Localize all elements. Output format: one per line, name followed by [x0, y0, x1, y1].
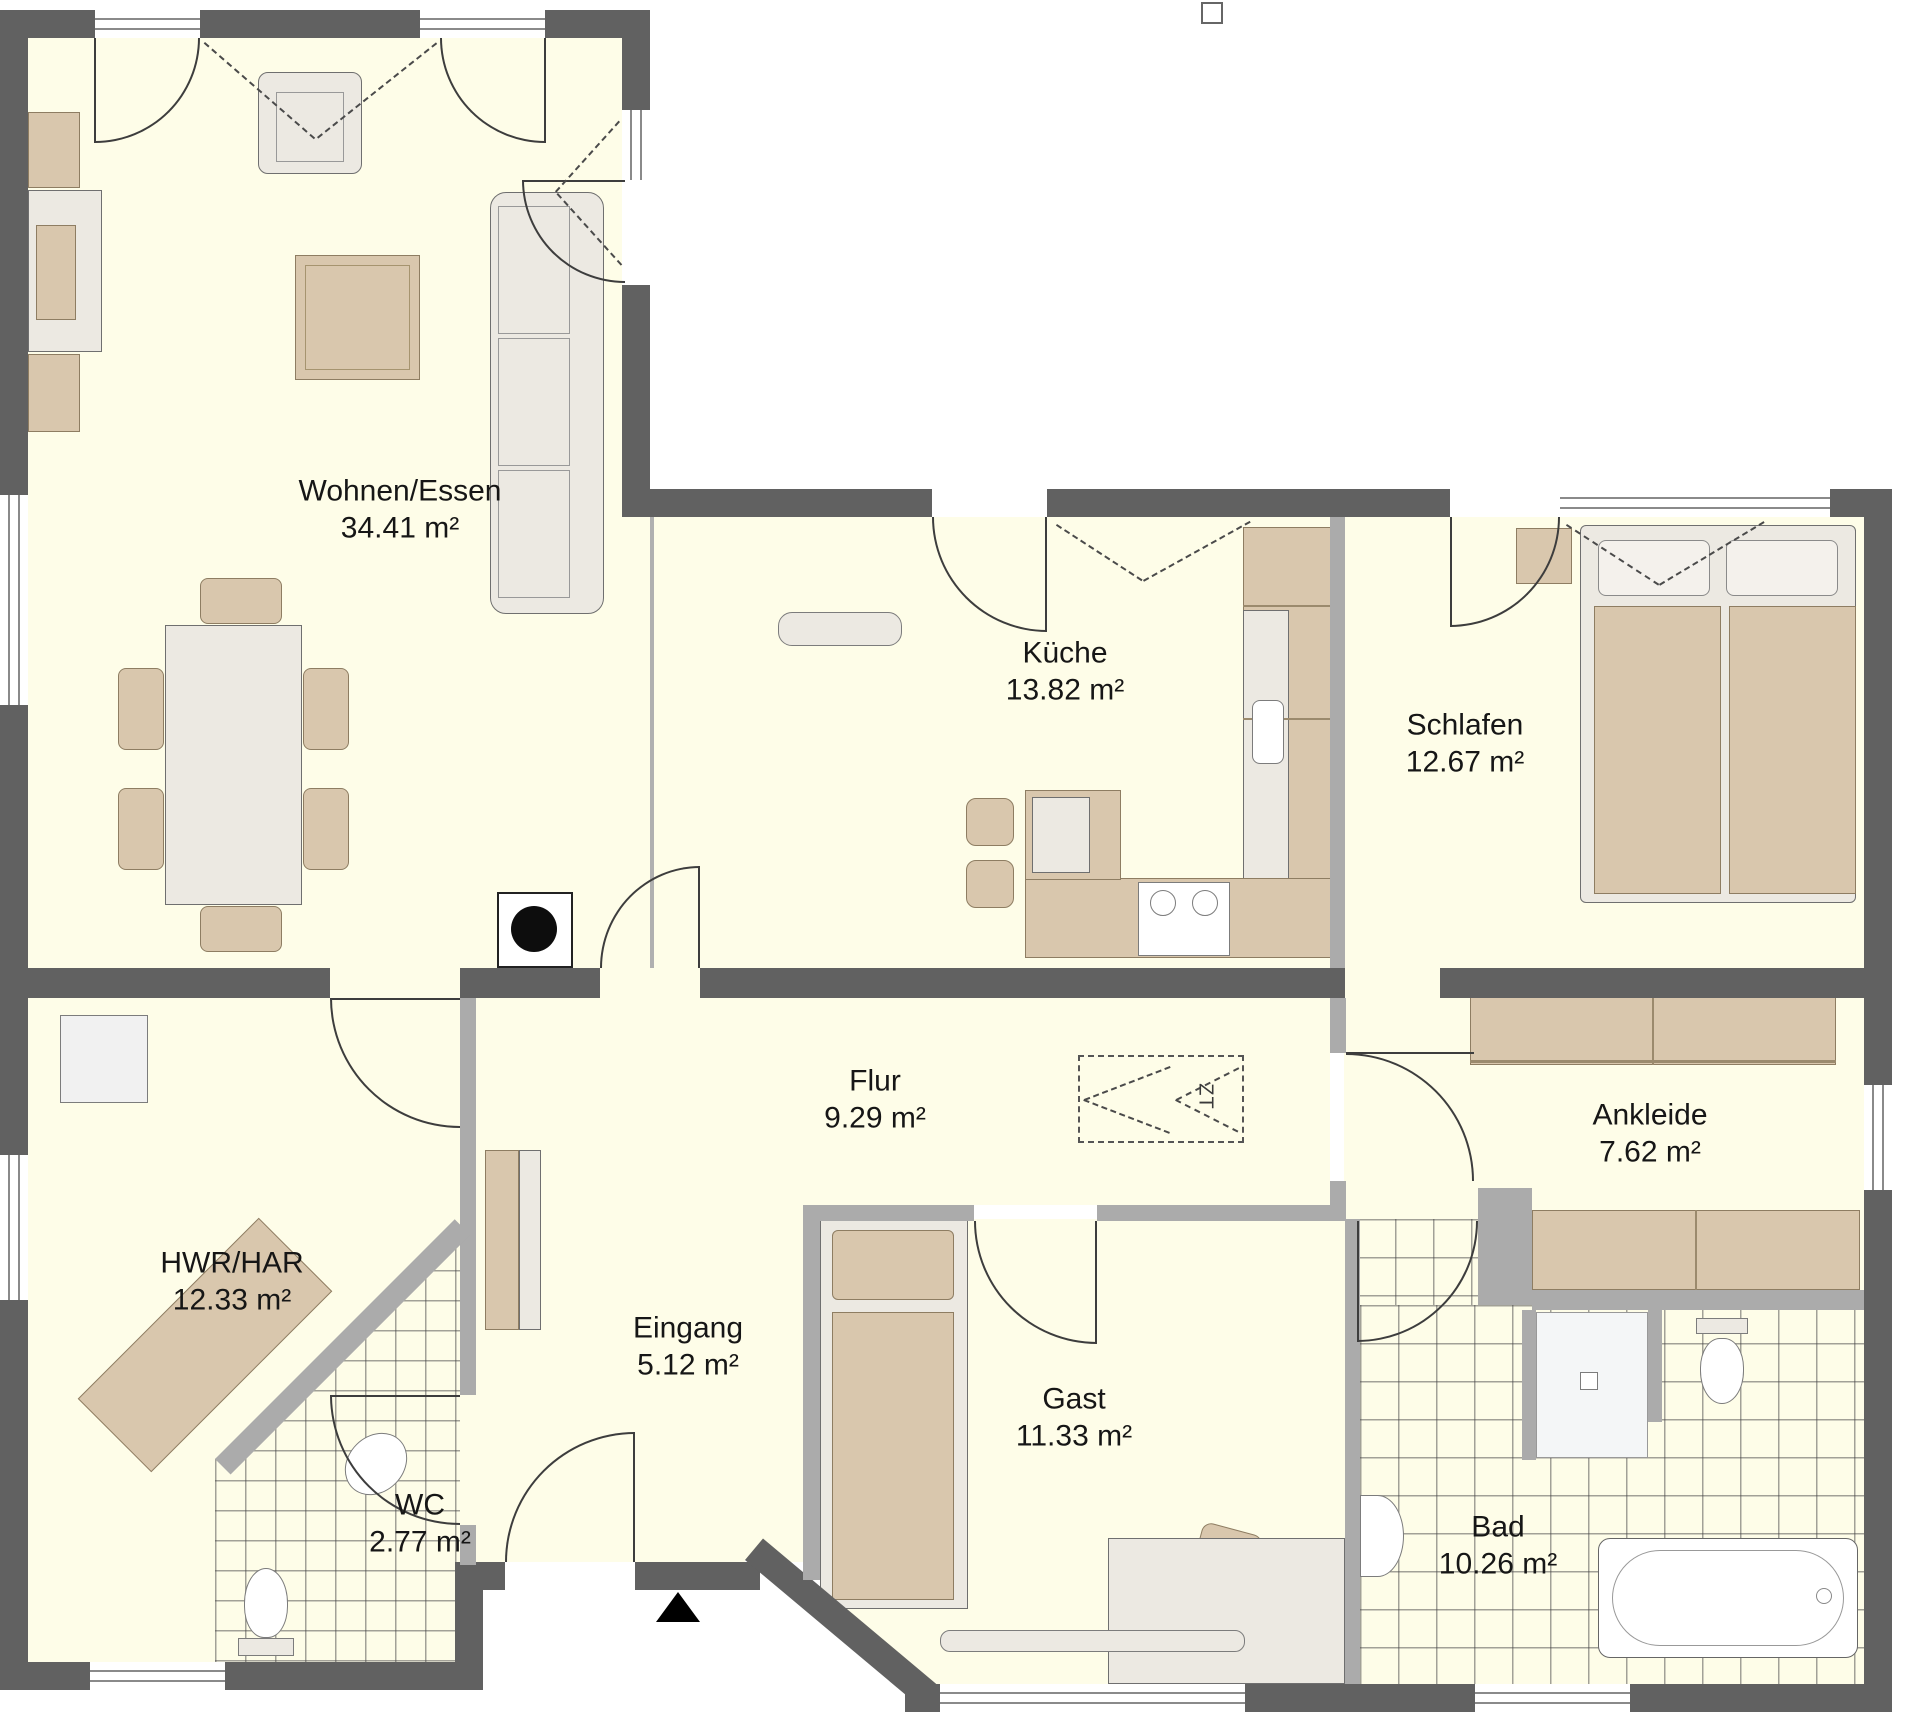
- room-label-eingang: Eingang5.12 m²: [633, 1310, 743, 1383]
- projection-dashed-line: [1083, 1099, 1170, 1134]
- toilet-tank: [238, 1638, 294, 1656]
- wall-segment-interior: [1522, 1310, 1536, 1460]
- room-name: WC: [369, 1487, 471, 1524]
- media-shelf: [28, 354, 80, 432]
- wall-segment-interior: [460, 998, 476, 1240]
- wall-segment-exterior: [1630, 1684, 1892, 1712]
- toilet: [244, 1568, 288, 1638]
- media-shelf: [28, 112, 80, 188]
- room-area: 12.67 m²: [1406, 744, 1524, 781]
- shower-drain: [1580, 1372, 1598, 1390]
- attic-ladder-symbol: ZT: [1078, 1055, 1244, 1143]
- room-name: Eingang: [633, 1310, 743, 1347]
- wall-segment-interior: [820, 1205, 974, 1221]
- desk: [1108, 1538, 1345, 1684]
- door-leaf: [330, 1395, 460, 1397]
- coffee-table-top: [305, 265, 410, 370]
- tv: [36, 225, 76, 320]
- wall-segment-exterior: [1864, 1190, 1892, 1690]
- wall-segment-exterior: [455, 1590, 483, 1666]
- room-area: 13.82 m²: [1006, 672, 1124, 709]
- door-leaf: [633, 1432, 635, 1562]
- door-leaf: [1095, 1221, 1097, 1344]
- wall-segment-exterior: [460, 968, 600, 998]
- chimney-flue: [511, 906, 557, 952]
- window: [940, 1684, 1245, 1712]
- dining-table: [165, 625, 302, 905]
- door-opening: [622, 180, 650, 285]
- guest-bed-mattress: [832, 1312, 954, 1600]
- room-area: 11.33 m²: [1016, 1418, 1132, 1455]
- furniture-divider-line: [1470, 1060, 1836, 1063]
- projection-dashed-line: [1084, 1066, 1171, 1101]
- armchair-seat: [276, 92, 344, 162]
- mattress: [1729, 606, 1856, 894]
- room-label-gast: Gast11.33 m²: [1016, 1381, 1132, 1454]
- attic-ladder-label: ZT: [1194, 1083, 1217, 1109]
- room-label-ankleide: Ankleide7.62 m²: [1592, 1097, 1707, 1170]
- plan-symbol: [1201, 2, 1223, 24]
- pillow: [1598, 540, 1710, 596]
- wall-segment-exterior: [1864, 489, 1892, 1085]
- dining-chair: [118, 668, 164, 750]
- floor-plan-canvas: ZT Wohnen/Essen34.41 m² Küche13.82 m² Sc…: [0, 0, 1920, 1712]
- window: [0, 1155, 28, 1300]
- sofa-cushion: [498, 338, 570, 466]
- wall-segment-interior: [1097, 1205, 1330, 1221]
- bathtub-drain: [1816, 1588, 1832, 1604]
- window: [1475, 1684, 1630, 1712]
- wall-segment-interior: [1330, 1181, 1346, 1221]
- wall-segment-exterior: [622, 285, 650, 517]
- dining-chair: [303, 788, 349, 870]
- room-label-hwr: HWR/HAR12.33 m²: [160, 1245, 303, 1318]
- window: [1560, 489, 1830, 517]
- door-opening: [1450, 489, 1560, 517]
- window: [1864, 1085, 1892, 1190]
- wall-segment-exterior: [1047, 489, 1450, 517]
- room-floor: [330, 968, 460, 998]
- room-name: Bad: [1439, 1509, 1557, 1546]
- wall-segment-exterior: [1245, 1684, 1345, 1712]
- dining-chair: [303, 668, 349, 750]
- room-label-wohnen-essen: Wohnen/Essen34.41 m²: [299, 473, 502, 546]
- wall-segment-interior: [460, 1240, 476, 1395]
- door-leaf: [522, 180, 625, 182]
- room-name: Wohnen/Essen: [299, 473, 502, 510]
- wall-segment-exterior: [700, 968, 1345, 998]
- room-area: 7.62 m²: [1592, 1134, 1707, 1171]
- guest-bed-pillow: [832, 1230, 954, 1300]
- wall-segment-interior: [1648, 1310, 1662, 1422]
- wall-segment-exterior: [225, 1662, 483, 1690]
- room-label-schlafen: Schlafen12.67 m²: [1406, 707, 1524, 780]
- door-leaf: [544, 38, 546, 143]
- door-leaf: [1045, 517, 1047, 632]
- room-name: Flur: [824, 1063, 926, 1100]
- wall-segment-exterior: [200, 10, 420, 38]
- door-leaf: [1346, 1052, 1474, 1054]
- bar-stool: [966, 860, 1014, 908]
- wall-segment-exterior: [0, 1662, 90, 1690]
- room-name: HWR/HAR: [160, 1245, 303, 1282]
- window: [0, 495, 28, 705]
- kitchen-sink: [1252, 700, 1284, 764]
- room-area: 5.12 m²: [633, 1347, 743, 1384]
- wall-segment-exterior: [650, 489, 932, 517]
- stove-burner: [1192, 890, 1218, 916]
- room-area: 9.29 m²: [824, 1100, 926, 1137]
- room-label-bad: Bad10.26 m²: [1439, 1509, 1557, 1582]
- window: [95, 10, 200, 38]
- door-leaf: [1450, 517, 1452, 627]
- wall-segment-exterior: [1345, 1684, 1475, 1712]
- door-leaf: [698, 866, 700, 968]
- window: [420, 10, 545, 38]
- room-floor: [1345, 968, 1440, 998]
- room-label-kueche: Küche13.82 m²: [1006, 635, 1124, 708]
- furniture-divider-line: [1652, 995, 1654, 1065]
- wall-segment-interior: [803, 1205, 820, 1580]
- toilet: [1700, 1338, 1744, 1404]
- room-name: Schlafen: [1406, 707, 1524, 744]
- wall-segment-exterior: [455, 1562, 505, 1590]
- dining-chair: [200, 578, 282, 624]
- sofa-cushion: [498, 470, 570, 598]
- entrance-arrow-icon: [656, 1592, 700, 1622]
- room-area: 12.33 m²: [160, 1282, 303, 1319]
- wall-segment-exterior: [635, 1562, 760, 1590]
- dining-chair: [118, 788, 164, 870]
- wall-segment-exterior: [0, 705, 28, 1155]
- wall-segment-exterior: [28, 968, 330, 998]
- wall-segment-exterior: [622, 10, 650, 110]
- door-leaf: [1357, 1221, 1359, 1342]
- room-label-flur: Flur9.29 m²: [824, 1063, 926, 1136]
- room-area: 10.26 m²: [1439, 1546, 1557, 1583]
- washing-machine: [60, 1015, 148, 1103]
- door-opening: [932, 489, 1047, 517]
- wall-segment-interior: [1330, 998, 1346, 1053]
- room-label-wc: WC2.77 m²: [369, 1487, 471, 1560]
- room-name: Küche: [1006, 635, 1124, 672]
- bar-stool: [966, 798, 1014, 846]
- dining-chair: [200, 906, 282, 952]
- pillow: [1726, 540, 1838, 596]
- entrance-door-opening: [505, 1562, 635, 1590]
- wall-segment-exterior: [0, 10, 28, 495]
- door-leaf: [330, 998, 460, 1000]
- wall-segment-interior: [1532, 1290, 1864, 1310]
- radiator: [778, 612, 902, 646]
- radiator: [940, 1630, 1245, 1652]
- mattress: [1594, 606, 1721, 894]
- wall-segment-interior: [1330, 517, 1345, 968]
- entry-closet-front: [519, 1150, 541, 1330]
- stove-burner: [1150, 890, 1176, 916]
- room-name: Gast: [1016, 1381, 1132, 1418]
- bathtub-basin: [1612, 1550, 1844, 1646]
- wall-segment-exterior: [0, 1300, 28, 1690]
- furniture-divider-line: [1243, 605, 1331, 607]
- window: [90, 1662, 225, 1690]
- room-name: Ankleide: [1592, 1097, 1707, 1134]
- room-area: 34.41 m²: [299, 510, 502, 547]
- wall-segment-exterior: [905, 1684, 940, 1712]
- furniture-divider-line: [1695, 1210, 1697, 1290]
- entry-closet: [485, 1150, 519, 1330]
- room-floor: [600, 968, 700, 998]
- room-area: 2.77 m²: [369, 1524, 471, 1561]
- wall-segment-exterior: [1440, 968, 1864, 998]
- kitchen-peninsula-top: [1032, 797, 1090, 873]
- wall-segment-interior: [1478, 1188, 1532, 1305]
- stove: [1138, 882, 1230, 956]
- door-leaf: [94, 38, 96, 143]
- window: [622, 110, 650, 180]
- toilet-tank: [1696, 1318, 1748, 1334]
